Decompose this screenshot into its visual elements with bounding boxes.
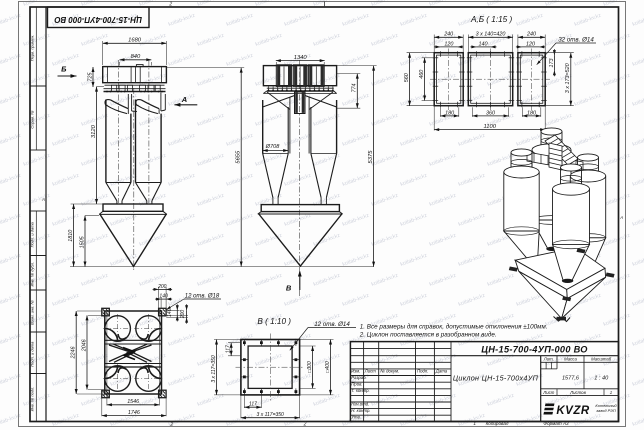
svg-text:774: 774	[352, 84, 358, 93]
svg-text:Масштаб: Масштаб	[591, 357, 612, 362]
svg-text:12 отв. Ø14: 12 отв. Ø14	[314, 321, 350, 328]
svg-text:А: А	[181, 95, 187, 104]
svg-text:3 x 117=350: 3 x 117=350	[257, 412, 285, 418]
svg-text:200: 200	[180, 310, 186, 320]
svg-text:Т. контр.: Т. контр.	[351, 388, 370, 393]
svg-text:Н. контр.: Н. контр.	[351, 408, 370, 413]
svg-text:12 отв. Ø18: 12 отв. Ø18	[185, 294, 220, 300]
svg-text:В: В	[286, 284, 292, 293]
svg-text:2: 2	[168, 2, 172, 8]
svg-text:840: 840	[131, 54, 141, 60]
svg-text:2246: 2246	[71, 347, 77, 360]
svg-text:Лит.: Лит.	[543, 357, 554, 362]
svg-text:360: 360	[486, 110, 495, 116]
svg-text:2: 2	[303, 421, 307, 427]
svg-text:ЦН-15-700-4УП-000 ВО: ЦН-15-700-4УП-000 ВО	[54, 15, 142, 24]
svg-text:32 отв. Ø14: 32 отв. Ø14	[558, 37, 594, 44]
svg-text:Инв. № подл.: Инв. № подл.	[30, 387, 35, 412]
svg-text:Формат А3: Формат А3	[543, 421, 569, 426]
svg-text:1 : 40: 1 : 40	[594, 376, 609, 382]
svg-text:173: 173	[549, 59, 555, 68]
svg-text:3 x 173=520: 3 x 173=520	[565, 63, 571, 93]
svg-text:Подп. и дата: Подп. и дата	[30, 341, 35, 367]
svg-text:1. Все размеры для справок, д: 1. Все размеры для справок, допустимые о…	[360, 323, 548, 331]
svg-text:120: 120	[444, 41, 453, 47]
svg-text:Лист: Лист	[364, 368, 376, 373]
svg-text:240: 240	[526, 32, 536, 38]
svg-text:Лист: Лист	[542, 390, 554, 395]
svg-text:Разраб.: Разраб.	[351, 375, 367, 380]
svg-text:180: 180	[527, 110, 536, 116]
svg-text:3120: 3120	[91, 124, 97, 138]
svg-text:№ докум.: № докум.	[380, 368, 399, 373]
svg-text:117: 117	[249, 402, 257, 408]
svg-text:ЦН-15-700-4УП-000 ВО: ЦН-15-700-4УП-000 ВО	[481, 345, 588, 355]
svg-text:1810: 1810	[68, 230, 74, 242]
svg-text:А: А	[619, 215, 623, 220]
svg-text:2: 2	[169, 422, 173, 428]
svg-text:117: 117	[226, 345, 232, 353]
svg-text:1577,6: 1577,6	[562, 376, 580, 382]
svg-text:1: 1	[473, 421, 476, 426]
svg-text:А,Б ( 1:15 ): А,Б ( 1:15 )	[470, 15, 513, 24]
svg-text:1100: 1100	[483, 124, 496, 130]
svg-text:Б: Б	[61, 65, 67, 74]
svg-text:Циклон ЦН-15-700х4УП: Циклон ЦН-15-700х4УП	[453, 373, 539, 382]
svg-text:Инв. № дубл.: Инв. № дубл.	[30, 262, 35, 287]
svg-text:140: 140	[159, 294, 168, 300]
svg-text:Изм.: Изм.	[351, 368, 360, 373]
svg-text:120: 120	[526, 41, 535, 47]
svg-text:А: А	[41, 197, 45, 202]
svg-text:Нач.отд.: Нач.отд.	[351, 401, 369, 406]
svg-text:□300: □300	[307, 361, 313, 373]
svg-text:1746: 1746	[128, 410, 140, 416]
svg-text:5655: 5655	[236, 150, 242, 164]
svg-text:240: 240	[443, 32, 453, 38]
svg-text:200: 200	[157, 284, 167, 290]
svg-text:1680: 1680	[128, 38, 142, 44]
svg-text:Пров.: Пров.	[351, 382, 362, 387]
svg-text:1340: 1340	[294, 55, 308, 61]
svg-text:Подп.: Подп.	[417, 368, 428, 373]
svg-text:Подп. и дата: Подп. и дата	[30, 222, 35, 248]
svg-text:140: 140	[479, 41, 488, 47]
svg-text:Утв.: Утв.	[351, 415, 361, 420]
svg-text:Дата: Дата	[435, 368, 448, 373]
svg-text:KVZR: KVZR	[556, 405, 590, 417]
svg-text:2046: 2046	[81, 339, 87, 352]
svg-text:завод РЭП: завод РЭП	[595, 408, 616, 413]
svg-text:Листов: Листов	[569, 390, 586, 395]
svg-text:3 x 117=350: 3 x 117=350	[211, 355, 217, 383]
svg-text:2. Циклон поставляется в разо: 2. Циклон поставляется в разобранном вид…	[359, 331, 497, 339]
svg-text:Копировал: Копировал	[486, 421, 509, 426]
svg-text:180: 180	[445, 110, 454, 116]
svg-text:560: 560	[404, 73, 410, 82]
svg-text:В ( 1:10 ): В ( 1:10 )	[257, 317, 291, 326]
svg-text:Справ. №: Справ. №	[30, 110, 35, 129]
svg-text:Взам. инв. №: Взам. инв. №	[30, 299, 35, 324]
svg-text:□400: □400	[325, 361, 331, 373]
svg-text:1505: 1505	[79, 235, 85, 248]
svg-text:1546: 1546	[127, 399, 139, 405]
svg-text:Масса: Масса	[564, 357, 577, 362]
svg-text:725: 725	[87, 72, 93, 82]
svg-text:Перв. примен.: Перв. примен.	[30, 35, 35, 62]
svg-text:3 x 140=420: 3 x 140=420	[476, 32, 506, 38]
svg-text:5375: 5375	[368, 150, 374, 164]
svg-text:460: 460	[419, 70, 425, 79]
svg-text:140: 140	[167, 308, 173, 317]
